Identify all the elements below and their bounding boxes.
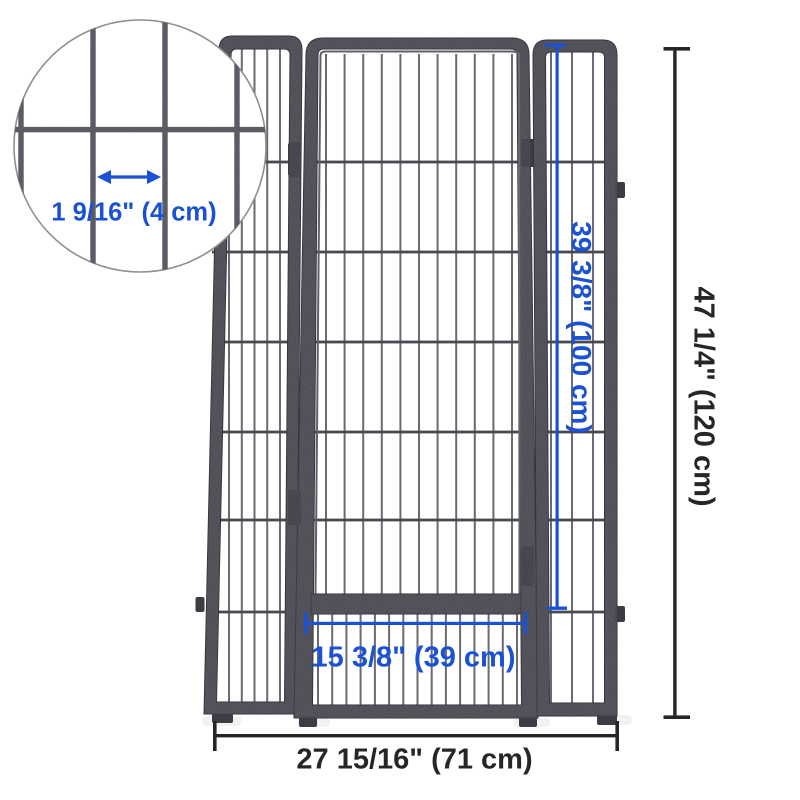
- svg-text:1 9/16" (4 cm): 1 9/16" (4 cm): [51, 199, 216, 227]
- svg-text:15 3/8" (39 cm): 15 3/8" (39 cm): [312, 642, 516, 674]
- svg-text:47 1/4" (120 cm): 47 1/4" (120 cm): [688, 286, 720, 506]
- svg-text:39 3/8" (100 cm): 39 3/8" (100 cm): [566, 221, 597, 434]
- svg-text:27 15/16" (71 cm): 27 15/16" (71 cm): [296, 744, 532, 776]
